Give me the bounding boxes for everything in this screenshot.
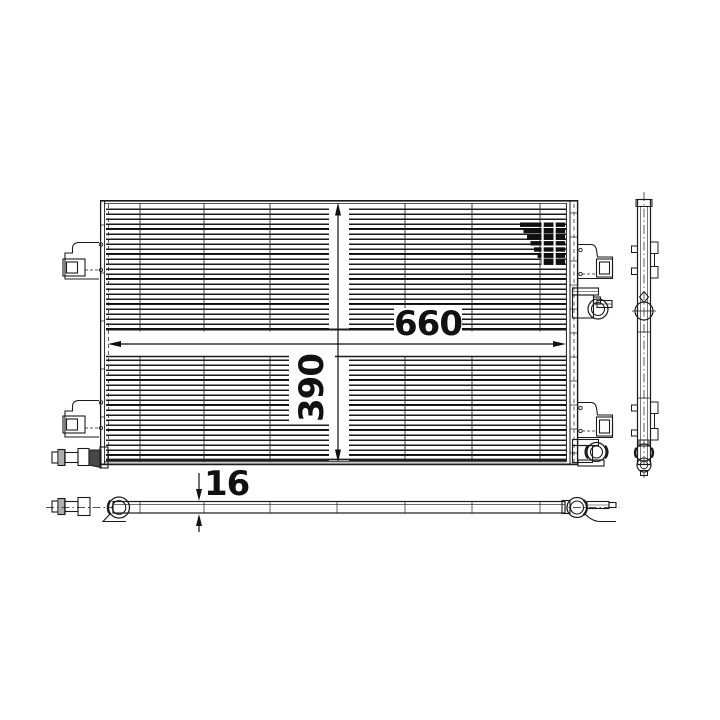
pipe-fitting-lower-left <box>52 447 108 468</box>
bottom-view <box>46 497 620 522</box>
side-view <box>632 192 659 478</box>
bracket-lower-right <box>578 403 613 438</box>
depth-dimension-label: 16 <box>204 468 248 500</box>
side-bracket-lower <box>632 402 659 440</box>
condenser-line-art <box>0 0 720 720</box>
bottom-fitting-right <box>562 498 616 522</box>
bracket-upper-right <box>578 245 613 279</box>
side-boss <box>632 302 656 320</box>
height-dimension-label: 390 <box>289 354 335 422</box>
dimension-clearance-bands <box>108 204 564 461</box>
front-view <box>52 200 613 468</box>
height-dimension-text: 390 <box>295 354 329 422</box>
valve-block-upper-right <box>573 288 613 319</box>
side-bracket-upper <box>632 242 659 278</box>
width-dimension-label: 660 <box>394 308 462 340</box>
bracket-upper-left <box>63 243 103 280</box>
technical-drawing-canvas: 660 390 16 <box>0 0 720 720</box>
shaded-core-section <box>520 221 565 265</box>
bracket-lower-left <box>63 401 103 438</box>
